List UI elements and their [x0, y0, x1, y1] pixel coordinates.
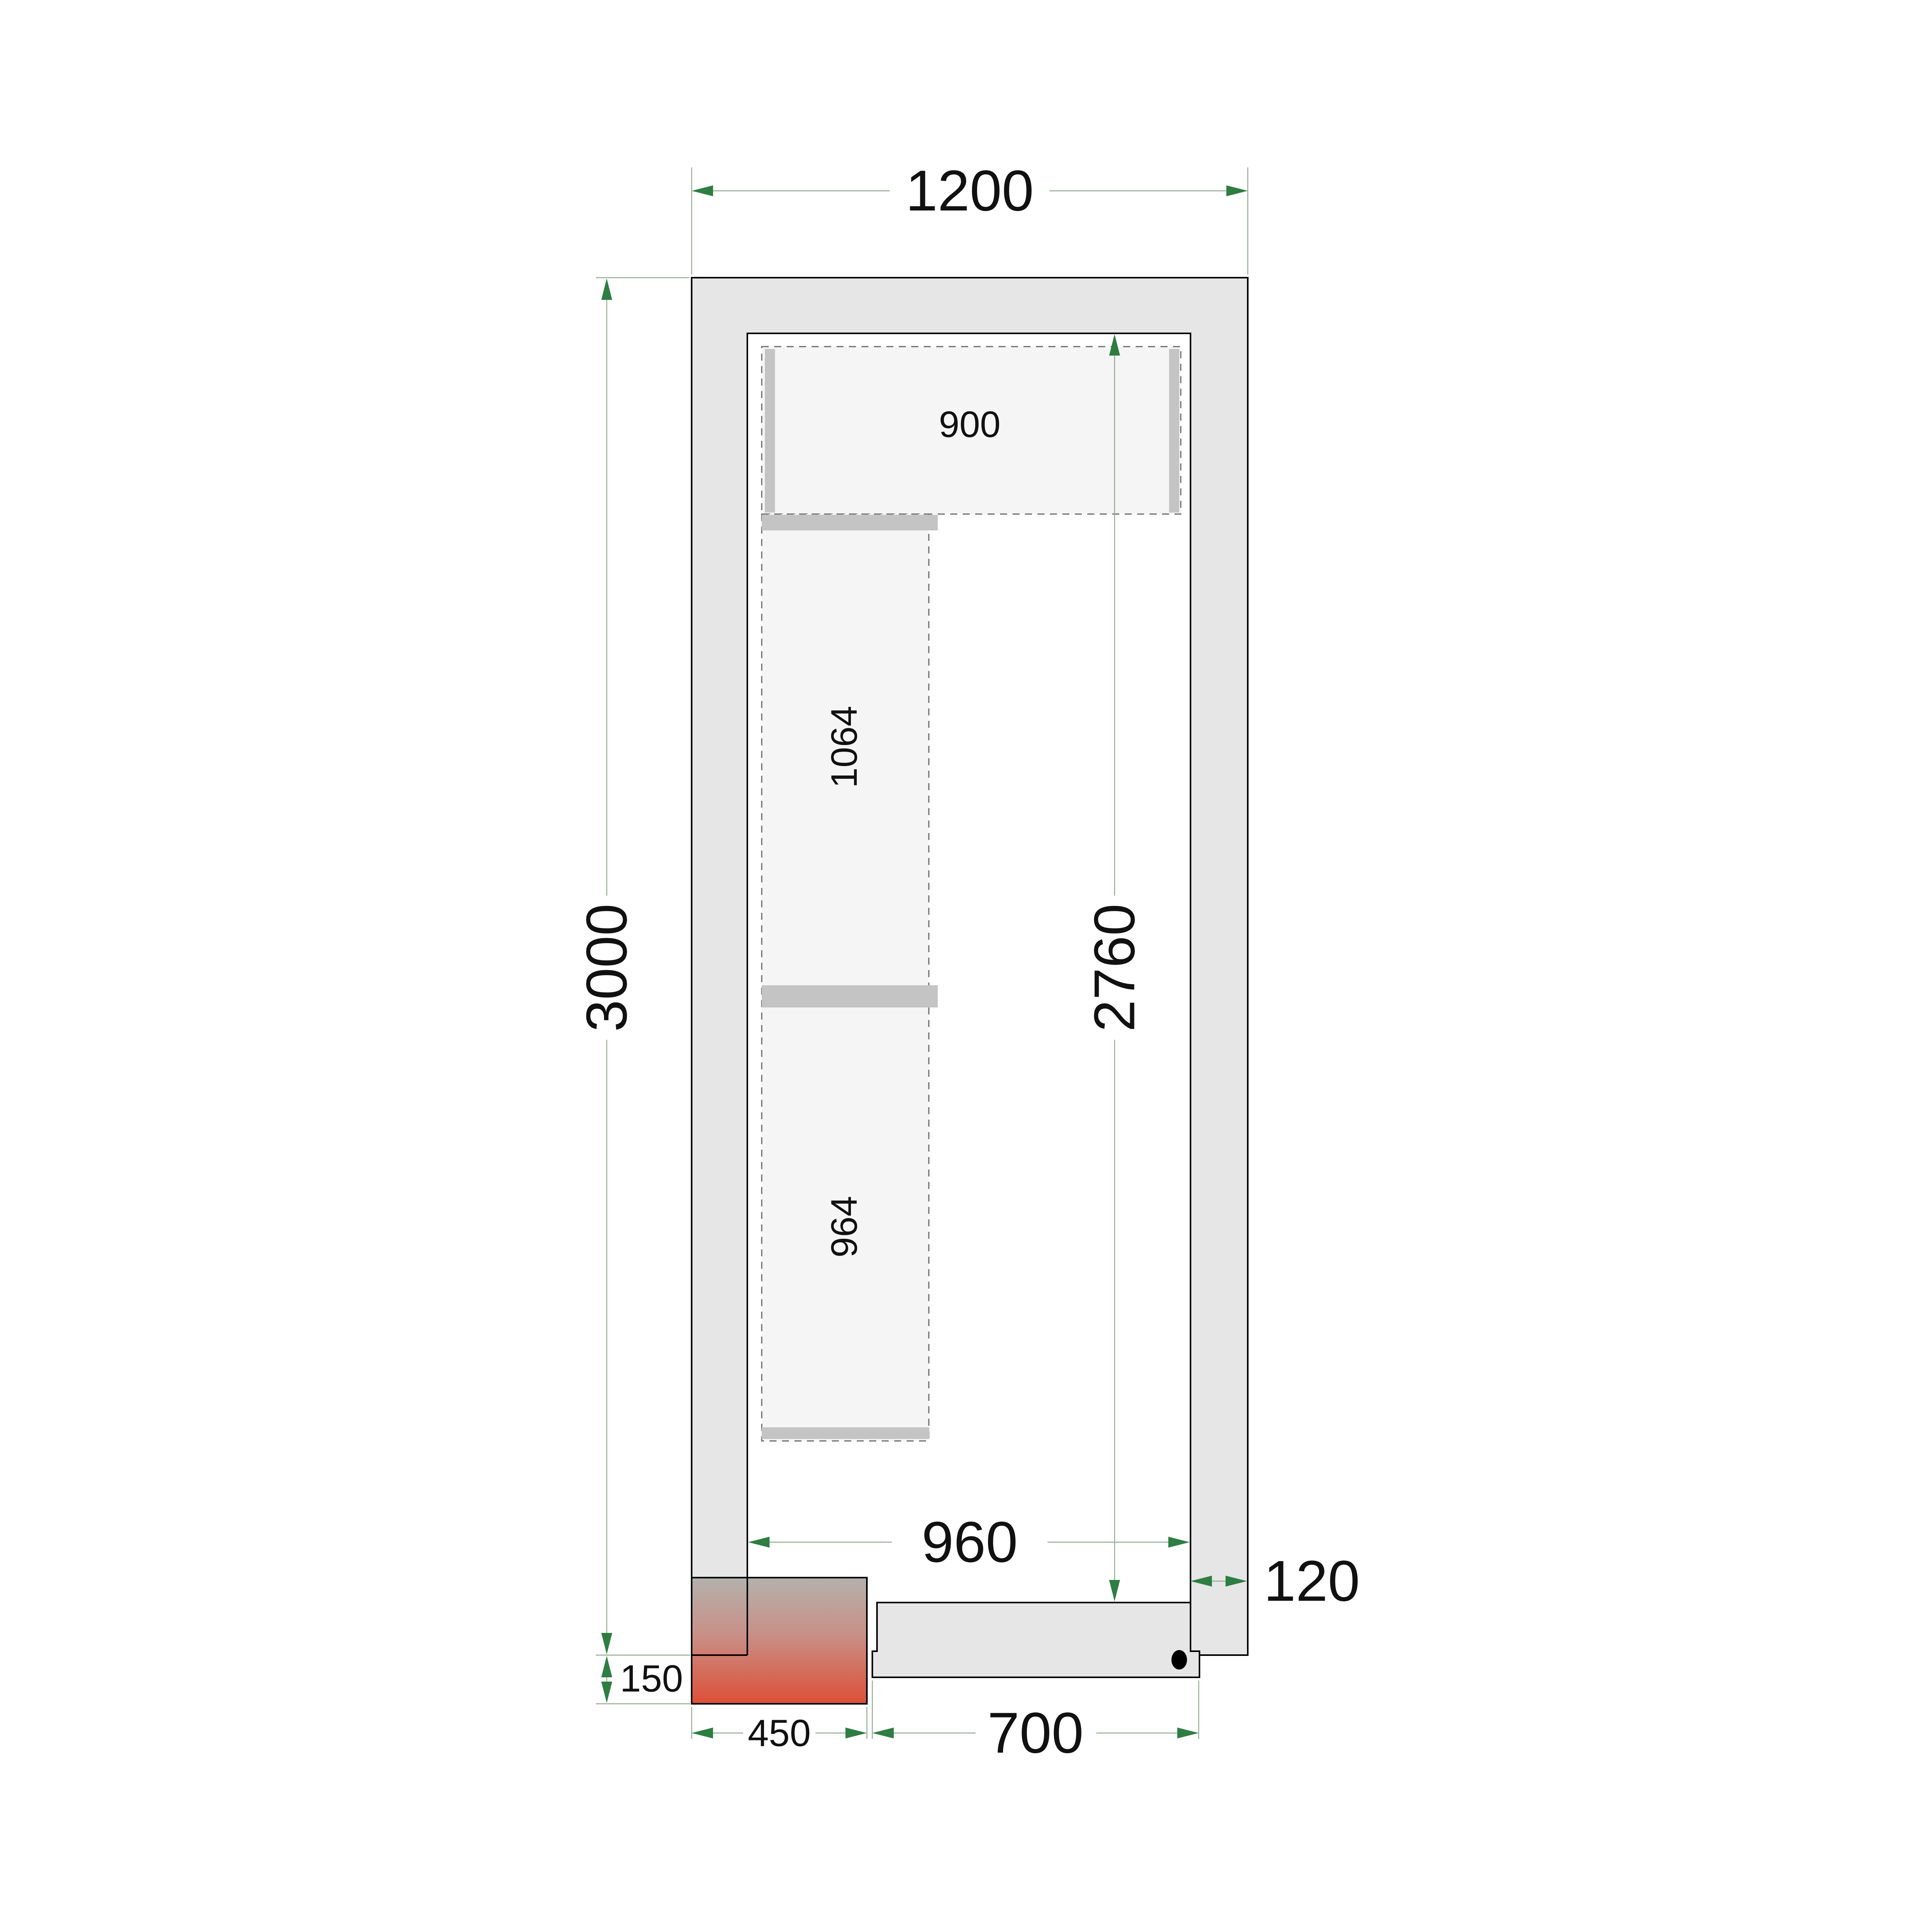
arrowhead-right-icon — [845, 1728, 867, 1738]
shelf-support-bar — [762, 515, 938, 530]
arrowhead-up-icon — [601, 1656, 612, 1677]
arrowhead-right-icon — [1168, 1537, 1190, 1548]
door-leaf — [872, 1603, 1199, 1677]
wall-thickness-label: 120 — [1264, 1549, 1360, 1613]
arrowhead-down-icon — [1109, 1580, 1120, 1601]
arrowhead-up-icon — [1109, 334, 1120, 356]
shelf-support-bar — [762, 985, 938, 1007]
shelf-support-bar — [765, 349, 775, 512]
left-shelf-upper-length-label: 1064 — [824, 706, 865, 788]
arrowhead-right-icon — [1177, 1728, 1199, 1738]
arrowhead-down-icon — [601, 1682, 612, 1703]
top-shelf-length-label: 900 — [939, 404, 1001, 445]
dim-overall-depth: 3000 — [575, 278, 690, 1655]
left-shelf — [762, 514, 929, 1441]
arrowhead-left-icon — [872, 1728, 894, 1738]
door-lock-dot — [1171, 1650, 1187, 1670]
shelf-support-bar — [762, 1427, 929, 1439]
shelving: 900 1064 964 — [762, 347, 1181, 1441]
dim-interior-width: 960 — [748, 1510, 1190, 1574]
shelf-support-bar — [1169, 349, 1179, 512]
arrowhead-left-icon — [692, 1728, 713, 1738]
unit-protrusion-label: 150 — [620, 1657, 683, 1700]
door-assembly — [872, 1603, 1199, 1677]
door-width-label: 700 — [988, 1701, 1084, 1765]
dim-unit-protrusion: 150 — [596, 1656, 690, 1704]
interior-width-label: 960 — [922, 1510, 1018, 1574]
unit-width-label: 450 — [748, 1712, 811, 1754]
dim-interior-depth: 2760 — [1083, 334, 1147, 1601]
arrowhead-up-icon — [601, 278, 612, 300]
overall-width-label: 1200 — [905, 159, 1034, 223]
overall-depth-label: 3000 — [575, 903, 639, 1032]
arrowhead-down-icon — [601, 1633, 612, 1654]
interior-depth-label: 2760 — [1083, 903, 1147, 1032]
dim-unit-width: 450 — [692, 1707, 867, 1754]
cold-room-plan-drawing: 900 1064 964 1200 3000 2760 — [0, 0, 1932, 1932]
dim-door-width: 700 — [872, 1680, 1199, 1765]
dim-overall-width: 1200 — [692, 159, 1248, 275]
condensing-unit — [692, 1578, 867, 1704]
left-shelf-lower-length-label: 964 — [824, 1196, 865, 1258]
arrowhead-right-icon — [1226, 185, 1248, 196]
arrowhead-left-icon — [692, 185, 713, 196]
arrowhead-left-icon — [748, 1537, 770, 1548]
condensing-unit-zone — [692, 1578, 867, 1704]
